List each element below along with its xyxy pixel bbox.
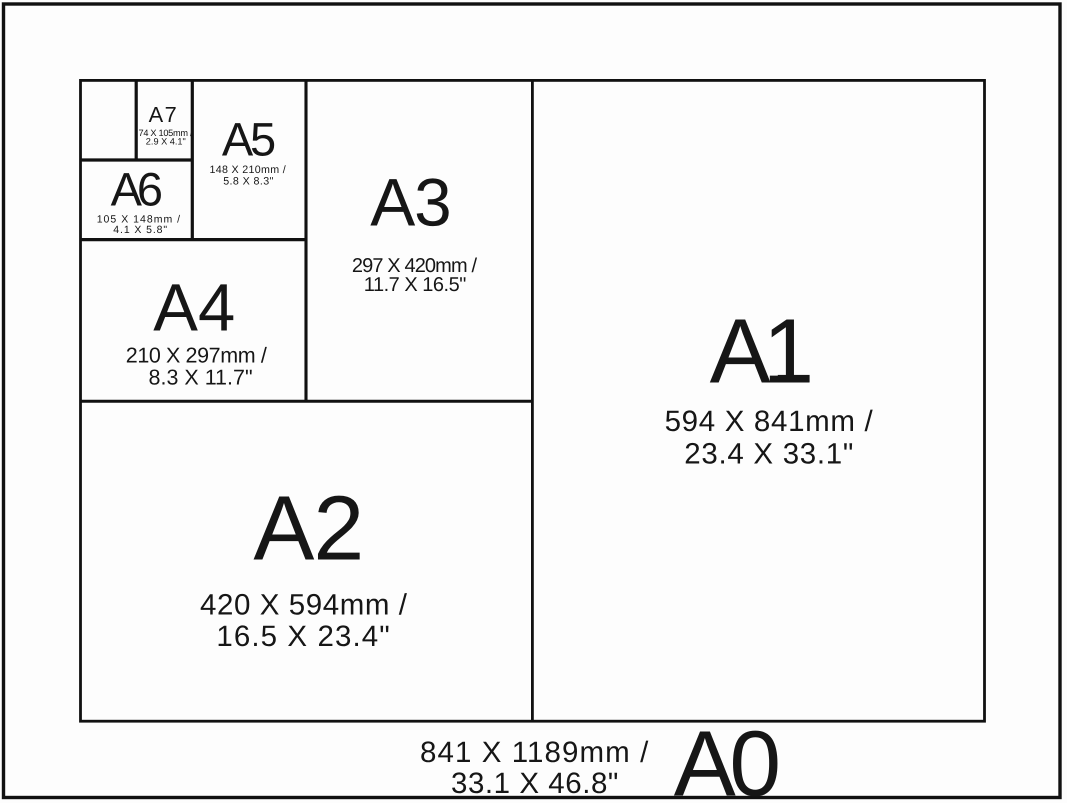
svg-text:4.1 X 5.8": 4.1 X 5.8" (113, 224, 167, 236)
svg-text:A1: A1 (710, 301, 814, 403)
svg-text:420 X 594mm /: 420 X 594mm / (200, 589, 408, 622)
svg-text:23.4 X 33.1": 23.4 X 33.1" (684, 438, 853, 471)
svg-text:210 X 297mm /: 210 X 297mm / (126, 344, 267, 368)
svg-text:A3: A3 (370, 165, 451, 240)
svg-text:A2: A2 (253, 478, 364, 580)
svg-text:5.8 X 8.3": 5.8 X 8.3" (223, 175, 273, 187)
svg-text:11.7 X 16.5": 11.7 X 16.5" (364, 274, 467, 296)
svg-text:A4: A4 (153, 270, 235, 345)
svg-text:16.5 X 23.4": 16.5 X 23.4" (216, 620, 389, 653)
svg-text:A0: A0 (674, 712, 781, 804)
svg-text:A5: A5 (222, 112, 276, 165)
svg-text:A6: A6 (111, 163, 163, 216)
svg-text:594 X 841mm /: 594 X 841mm / (665, 405, 874, 438)
svg-text:33.1 X 46.8": 33.1 X 46.8" (451, 767, 618, 800)
svg-text:148 X 210mm /: 148 X 210mm / (210, 164, 286, 176)
svg-text:2.9 X 4.1": 2.9 X 4.1" (146, 137, 186, 147)
svg-text:A7: A7 (149, 102, 177, 127)
svg-text:8.3 X 11.7": 8.3 X 11.7" (149, 366, 253, 390)
svg-text:841 X 1189mm /: 841 X 1189mm / (420, 736, 649, 769)
